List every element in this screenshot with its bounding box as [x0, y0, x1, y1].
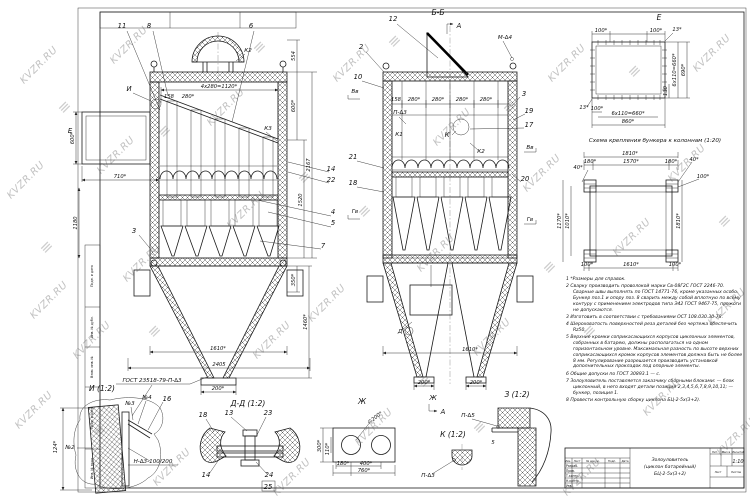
dim-158: 158	[391, 97, 402, 103]
weld-mark-p3: П-∆3	[421, 472, 435, 479]
column-symbols	[584, 180, 678, 262]
stamp-row-nkontr: Н.контр.	[566, 479, 580, 483]
note-item: 1 *Размеры для справок.	[566, 277, 743, 283]
callout-14: 14	[327, 165, 336, 173]
dim-350: 350*	[291, 273, 297, 286]
weld-mark-n3: №3	[124, 401, 135, 407]
detail-d-d: Д-Д (1:2) 18 13 23 14 24 25	[199, 399, 300, 491]
callout-17: 17	[525, 121, 534, 129]
dim-13: 13*	[672, 27, 682, 33]
note-item: 3 Изготовить в соответствии с требования…	[566, 315, 743, 321]
callout-3: 3	[132, 227, 136, 235]
callout-21: 21	[349, 153, 358, 161]
dim-280: 280*	[432, 97, 445, 103]
bunker-plan	[590, 186, 672, 256]
dim-400: 400*	[360, 461, 373, 467]
callout-24: 24	[265, 471, 274, 479]
hopper-left-wall	[150, 266, 214, 378]
dim-200: 200*	[418, 380, 431, 386]
view-arrow-a: А	[440, 408, 446, 416]
dim-660: 6х110=660*	[672, 53, 678, 87]
dim-200: 200*	[212, 386, 225, 392]
dim-860: 860*	[622, 119, 635, 125]
dim-130: 130	[663, 85, 669, 96]
detail-i: И (1:2) ГОСТ 23518-79-П-∆3 №3 №4 16 №2 1…	[53, 377, 190, 493]
level-mark-vv: Вв	[351, 89, 358, 95]
shell-left-wall	[150, 82, 159, 258]
note-item: 6 Общие допуски по ГОСТ 30893.1 — с.	[566, 372, 743, 378]
hopper-right-wall	[223, 266, 287, 378]
dim-660: 6х110=660*	[611, 111, 645, 117]
detail-mark-k: К	[445, 131, 451, 139]
view-mark-zh: Ж	[428, 394, 437, 402]
stamp-massa: Масса	[722, 450, 731, 454]
dim-2167: 2167	[306, 158, 312, 172]
shell-right-wall	[278, 82, 287, 258]
dim-dia200: ∅200*	[367, 410, 384, 425]
stamp-row-razrab: Разраб.	[566, 464, 578, 468]
callout-8: 8	[147, 22, 152, 30]
stamp-listov: Листов	[731, 470, 741, 474]
dim-100: 100*	[650, 28, 663, 34]
dim-280: 280*	[456, 97, 469, 103]
callout-23: 23	[264, 409, 273, 417]
detail-title: Д-Д (1:2)	[230, 399, 266, 408]
drawing-canvas: Подп. и дата Инв. № дубл. Взам. инв. № П…	[0, 0, 750, 500]
inlet-duct	[82, 112, 150, 164]
dim-124: 124*	[53, 440, 59, 453]
scheme-title: Схема крепления бункера к колоннам (1:20…	[589, 138, 721, 144]
dim-180: 180*	[665, 159, 678, 165]
bellmouth-row	[160, 171, 277, 179]
stamp-row-tkontr: Т.контр.	[565, 474, 579, 478]
hopper-outlet-flange	[201, 378, 236, 385]
dim-1520: 1520	[298, 193, 304, 207]
notes-list: 1 *Размеры для справок. 2 Сварку произво…	[566, 277, 743, 405]
dim-100: 100*	[697, 174, 710, 180]
callout-13: 13	[225, 409, 234, 417]
stamp-scale-value: 1:10	[732, 459, 743, 465]
view-title-e: Е	[657, 13, 662, 22]
detail-mark-i: И	[126, 85, 131, 93]
stamp-col-izm: Изм.	[565, 459, 571, 463]
section-arrow-a: А	[456, 22, 462, 30]
callout-16: 16	[163, 395, 172, 403]
note-item: 5 Верхние кромки соприкасающихся корпусо…	[566, 335, 743, 370]
view-e: Е 100* 100* 13* 6х110=660* 690* 130 13* …	[579, 13, 690, 128]
detail-mark-d: Д	[397, 329, 403, 335]
dim-200: 200*	[470, 380, 483, 386]
callout-5: 5	[331, 219, 335, 227]
callout-7: 7	[321, 242, 326, 250]
dim-158: 158	[164, 94, 175, 100]
callout-20: 20	[521, 175, 530, 183]
weld-mark-n2: №2	[64, 445, 75, 451]
doc-name-line2: (циклон батарейный)	[644, 464, 696, 470]
dim-280: 280*	[182, 94, 195, 100]
dim-1120: 4х280=1120*	[201, 84, 238, 90]
dim-1610: 1610*	[623, 262, 639, 268]
inlet-flange	[592, 42, 665, 98]
dim-1810: 1810*	[676, 213, 682, 229]
section-title: Б-Б	[432, 8, 445, 17]
callout-12: 12	[389, 15, 398, 23]
dim-1570: 1570*	[623, 159, 639, 165]
callout-2: 2	[359, 43, 363, 51]
weld-size-label: Н-∆3-100/200	[134, 458, 173, 465]
level-mark-gv: Гв	[352, 209, 358, 215]
dim-110: 110*	[325, 442, 331, 455]
tube-plate	[159, 195, 278, 200]
dim-760: 760*	[358, 468, 371, 474]
stamp-lit: Лит.	[712, 450, 718, 454]
dim-40: 40*	[689, 157, 699, 163]
support-bracket	[134, 270, 150, 296]
dim-280: 280*	[480, 97, 493, 103]
detail-k: К (1:2) П-∆3	[421, 430, 472, 479]
stamp-col-doc: № докум.	[586, 459, 599, 463]
weld-gost-label: ГОСТ 23518-79-П-∆3	[122, 377, 182, 384]
dim-690: 690*	[681, 63, 687, 76]
dim-554: 554	[291, 51, 297, 61]
note-item: 7 Золоуловитель поставляется заказчику с…	[566, 379, 743, 396]
dim-1460: 1460*	[303, 314, 309, 330]
callout-6: 6	[249, 22, 254, 30]
weld-mark-k2: К2	[477, 149, 485, 155]
stamp-col-data: Дата	[622, 459, 629, 463]
dim-300: 300*	[317, 439, 323, 452]
section-b-b: Б-Б А 12 М-∆4 158 280* 280* 280* 280* П-…	[348, 8, 536, 416]
callout-14: 14	[202, 471, 211, 479]
title-block: Изм. Лист № докум. Подп. Дата Разраб. Пр…	[565, 448, 745, 488]
margin-label: Взам. инв. №	[90, 356, 94, 378]
stamp-row-prov: Пров.	[566, 469, 575, 473]
weld-mark-n4: №4	[141, 395, 152, 401]
view-mark-e: Е	[68, 127, 73, 135]
view-zh: Ж ∅200* 300* 110* 180* 400* 760*	[317, 397, 395, 476]
weld-mark-k1: К1	[395, 132, 403, 138]
blueprint-sheet: Подп. и дата Инв. № дубл. Взам. инв. № П…	[0, 0, 750, 500]
weld-mark-k3: К3	[264, 126, 272, 132]
weld-mark-m4: М-∆4	[498, 34, 513, 41]
detail-z: З (1:2) П-∆5 5	[461, 390, 551, 486]
callout-4: 4	[331, 208, 335, 216]
callout-10: 10	[354, 73, 363, 81]
front-view: 4х280=1120* 158 280* 600* 710* 1180 554 …	[68, 22, 335, 395]
dim-2405: 2405	[212, 362, 226, 368]
dim-100: 100*	[581, 262, 594, 268]
callout-22: 22	[327, 176, 336, 184]
margin-label: Инв. № дубл.	[90, 316, 94, 338]
dim-100: 100*	[595, 28, 608, 34]
dim-1180: 1180	[73, 216, 79, 230]
callout-3: 3	[522, 90, 526, 98]
corner-stamp-box	[100, 12, 296, 28]
dim-100: 100*	[669, 262, 682, 268]
level-mark-gv: Гв	[527, 217, 533, 223]
callout-19: 19	[525, 107, 534, 115]
doc-name-line1: Золоуловитель	[652, 457, 689, 463]
bolt	[245, 436, 255, 460]
doc-name-line3: БЦ-2-5х(3+2)	[654, 471, 686, 477]
hopper-plate	[410, 285, 452, 315]
detail-title: К (1:2)	[440, 430, 466, 439]
dim-5: 5	[491, 440, 495, 446]
dim-1610: 1610*	[210, 346, 226, 352]
stamp-col-podp: Подп.	[608, 459, 616, 463]
callout-18: 18	[199, 411, 208, 419]
weld-mark-p3: П-∆3	[393, 109, 407, 116]
dim-40: 40*	[573, 165, 583, 171]
dim-13: 13*	[579, 105, 589, 111]
dim-180: 180*	[584, 159, 597, 165]
stamp-list: Лист	[715, 470, 722, 474]
callout-18: 18	[349, 179, 358, 187]
callout-25: 25	[264, 483, 273, 491]
detail-title: И (1:2)	[89, 384, 115, 393]
dim-1810: 1810*	[622, 151, 638, 157]
flange-plate	[333, 428, 395, 462]
stamp-row-utv: Утв.	[566, 484, 573, 488]
stamp-col-list: Лист	[574, 459, 581, 463]
dim-280: 280*	[408, 97, 421, 103]
dim-710: 710*	[114, 174, 127, 180]
dim-1610: 1610*	[462, 347, 478, 353]
dim-1170: 1170*	[557, 213, 563, 229]
note-item: 8 Провести контрольную сборку циклона БЦ…	[566, 398, 743, 404]
margin-label: Подп. и дата	[90, 265, 94, 287]
level-mark-vv: Вв	[526, 145, 533, 151]
detail-circle-k	[453, 119, 469, 135]
dim-600: 600*	[291, 99, 297, 112]
note-item: 4 Шероховатость поверхностей реза детале…	[566, 322, 743, 334]
detail-title: З (1:2)	[504, 390, 529, 399]
dim-180: 180*	[337, 461, 350, 467]
dim-1010: 1010*	[565, 213, 571, 229]
shell-top	[150, 72, 287, 82]
view-title: Ж	[357, 397, 367, 406]
weld-mark-k2: К2	[244, 48, 252, 54]
note-item: 2 Сварку производить проволокой марки Св…	[566, 284, 743, 313]
weld-mark-p5: П-∆5	[461, 412, 475, 419]
callout-11: 11	[118, 22, 127, 30]
stamp-masshtab: Масштаб	[732, 450, 745, 454]
dim-100: 100*	[591, 106, 604, 112]
scheme-plan: Схема крепления бункера к колоннам (1:20…	[557, 138, 721, 271]
